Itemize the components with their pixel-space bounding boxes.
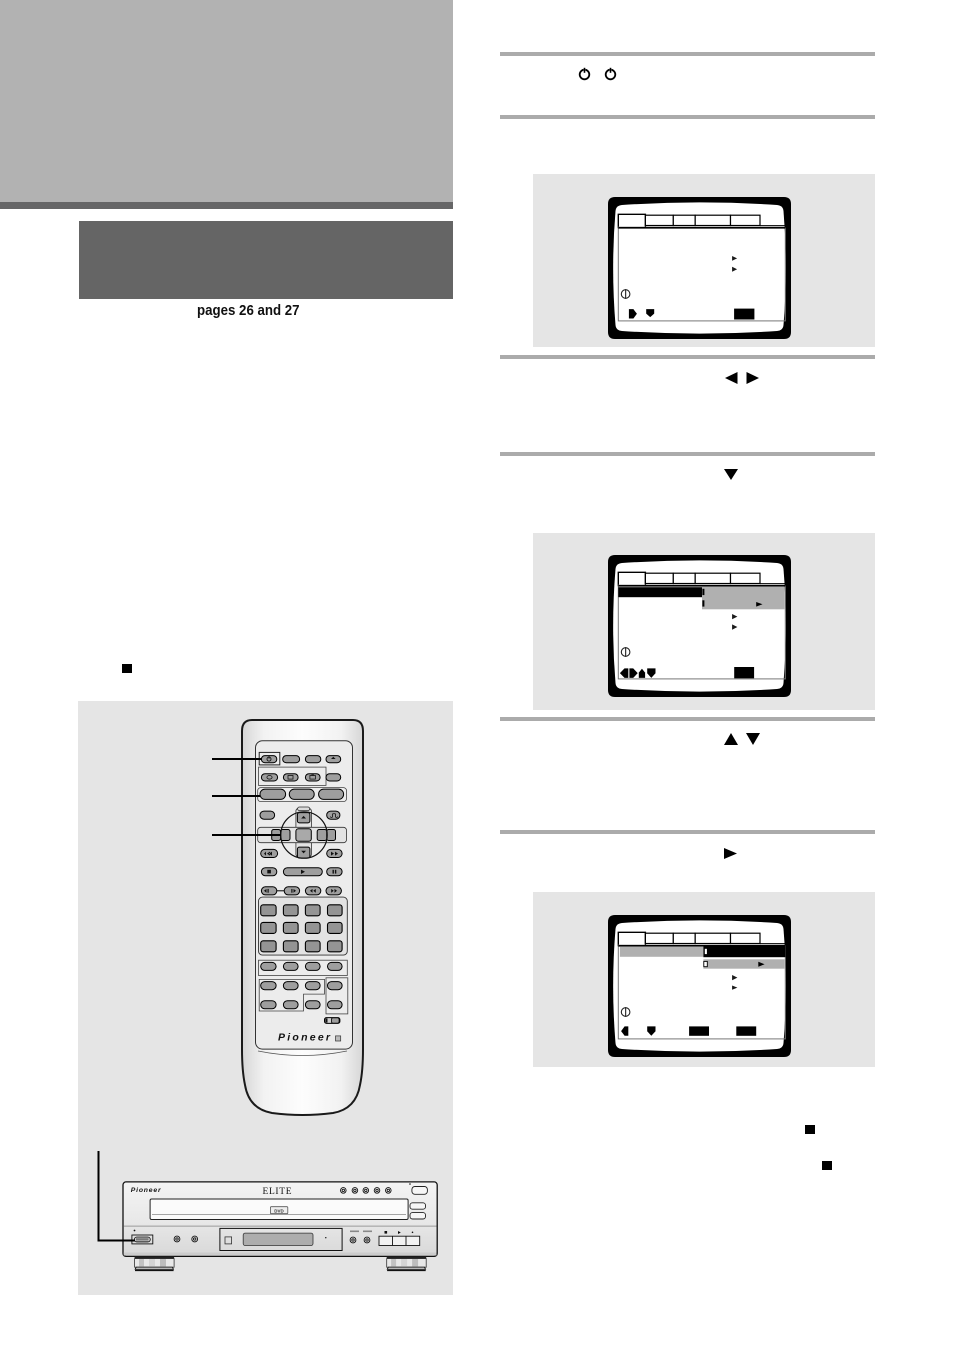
- svg-text:DVD: DVD: [274, 1208, 284, 1213]
- svg-text:ELITE: ELITE: [263, 1187, 292, 1197]
